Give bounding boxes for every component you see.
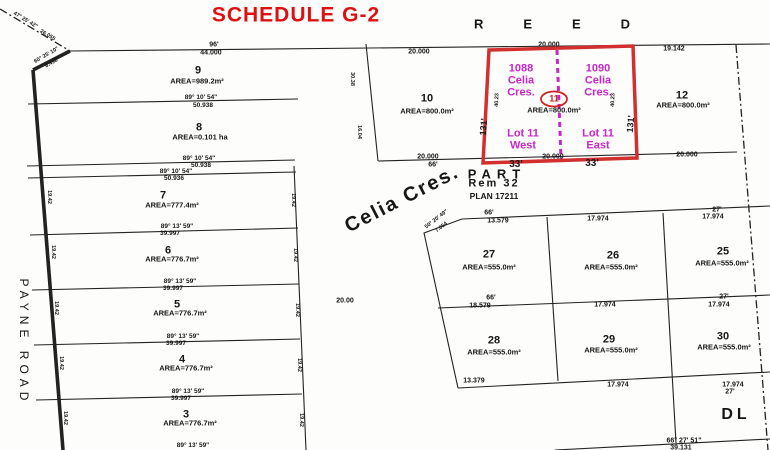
depth-3-left: 19.42 [61, 411, 67, 425]
dim-17974-30bottom: 17.974 [722, 382, 743, 389]
dist-5: 39.997 [163, 286, 183, 293]
dl-line [555, 439, 770, 450]
lot-11-west-line2: West [510, 141, 536, 152]
lot-25-area: AREA=555.0m² [695, 259, 749, 267]
dim-27ft-30bottom: 27' [725, 389, 734, 396]
dist-7: 39.997 [171, 396, 191, 403]
dim-33ft-west: 33' [509, 160, 523, 170]
dim-66ft-27bottom: 66' [486, 295, 495, 302]
dim-44000: 44.000 [200, 50, 221, 57]
dim-17974-mid2: 17.974 [708, 302, 729, 309]
dim-2000-road: 20.00 [336, 298, 354, 305]
dim-19142: 19.142 [663, 46, 684, 53]
lot-11-number: 11 [549, 95, 559, 104]
depth-6-right: 19.42 [291, 248, 297, 262]
road-edges [0, 9, 768, 450]
dim-131ft-left: 131' [479, 118, 489, 136]
dim-27ft-25top: 27' [712, 207, 721, 214]
dist-4: 39.997 [160, 231, 180, 238]
depth-4-right: 19.42 [295, 358, 301, 372]
survey-linework [0, 0, 770, 450]
dim-13579-top: 13.579 [487, 218, 508, 225]
rem-32-label: Rem 32 [468, 179, 519, 190]
depth-6-left: 19.42 [49, 245, 55, 259]
lot-30-number: 30 [717, 332, 729, 343]
addr-1090-line1: 1090 [586, 64, 610, 75]
lot4-lot3-line [36, 394, 302, 400]
dim-17974-26top: 17.974 [587, 216, 608, 223]
dim-66ft-lot10: 66' [428, 162, 437, 169]
dim-4023-left: 40.23 [495, 93, 501, 107]
depth-5-left: 19.42 [52, 301, 58, 315]
lot-6-area: AREA=776.7m² [145, 255, 199, 263]
street-payne-road: PAYNE ROAD [18, 279, 30, 406]
lot-29-number: 29 [603, 335, 615, 346]
dim-20000-lot10: 20.000 [408, 49, 429, 56]
lot-26-area: AREA=555.0m² [584, 263, 638, 271]
dist-6: 39.997 [166, 341, 186, 348]
lot-11-east-line1: Lot 11 [582, 129, 614, 140]
lot-3-area: AREA=776.7m² [163, 419, 217, 427]
lot-11-west-line1: Lot 11 [507, 129, 539, 140]
lot8-bottom-line [27, 160, 295, 166]
depth-4-left: 19.42 [57, 356, 63, 370]
lot-27-number: 27 [483, 250, 495, 261]
lot-10-area: AREA=800.0m² [400, 107, 454, 115]
lot-4-area: AREA=776.7m² [159, 364, 213, 372]
plat-map: SCHEDULE G-2REEDPAYNE ROADCelia Cres.PAR… [0, 0, 770, 450]
east-boundary-dashline [736, 45, 768, 450]
dim-131ft-right: 131' [626, 115, 636, 133]
lot-28-number: 28 [488, 336, 500, 347]
dim-17974-25top: 17.974 [702, 214, 723, 221]
depth-5-right: 19.42 [293, 303, 299, 317]
lot26-lot25-line [663, 213, 676, 443]
depth-3-right: 19.42 [297, 413, 303, 427]
lot-11-area: AREA=800.0m² [527, 106, 581, 114]
lot-27-area: AREA=555.0m² [462, 263, 516, 271]
addr-1088-line2: Celia [508, 76, 534, 87]
dim-18579: 18.579 [469, 303, 490, 310]
addr-1088-line3: Cres. [507, 88, 535, 99]
street-reed: REED [474, 18, 670, 31]
dim-33ft-east: 33' [585, 159, 599, 169]
dist-dl: 39.131 [670, 445, 691, 450]
lot-26-number: 26 [607, 251, 619, 262]
edge-1604: 16.04 [355, 125, 361, 139]
lot-12-area: AREA=800.0m² [656, 101, 710, 109]
dist-1: 50.938 [193, 103, 213, 110]
lot-8-area: AREA=0.101 ha [172, 133, 227, 141]
dim-66ft-27top: 66' [484, 210, 493, 217]
dist-2: 50.938 [191, 163, 211, 170]
dim-20000-lot11-top: 20.000 [538, 42, 559, 49]
lot-9-area: AREA=989.2m² [170, 77, 224, 85]
lot-28-area: AREA=555.0m² [467, 348, 521, 356]
lot-9-number: 9 [195, 66, 201, 77]
dim-20000-lot11-bottom: 20.000 [542, 154, 563, 161]
lot-30-area: AREA=555.0m² [697, 343, 751, 351]
addr-1088-line1: 1088 [509, 64, 533, 75]
lot-29-area: AREA=555.0m² [584, 346, 638, 354]
dist-3: 50.936 [164, 176, 184, 183]
dim-27ft-mid: 27' [719, 294, 728, 301]
lot9-lot8-line [28, 99, 298, 104]
edge-3038: 30.38 [348, 72, 354, 86]
plan-17211-label: PLAN 17211 [470, 192, 519, 201]
dim-17974-mid: 17.974 [594, 302, 615, 309]
bearing-1: 89° 10' 54" [185, 95, 218, 102]
dim-4023-right: 40.23 [611, 93, 617, 107]
addr-1090-line2: Celia [585, 76, 611, 87]
dim-20000-lot10-bottom: 20.000 [417, 154, 438, 161]
lot-7-area: AREA=777.4m² [145, 201, 199, 209]
bearing-dl: 66° 27' 51" [666, 438, 701, 445]
lot9-lot10-line [366, 44, 378, 161]
bearing-8: 89° 13' 59" [177, 443, 210, 450]
map-title: SCHEDULE G-2 [212, 5, 380, 26]
depth-7-left: 19.42 [45, 190, 51, 204]
lot-11-east-line2: East [586, 141, 609, 152]
addr-1090-line3: Cres. [584, 88, 612, 99]
lot-10-number: 10 [421, 94, 433, 105]
lot-5-area: AREA=776.7m² [153, 309, 207, 317]
dl-label: DL [721, 407, 750, 423]
lot27-lot26-line [547, 217, 558, 381]
lot-25-number: 25 [717, 247, 729, 258]
depth-7-right: 19.42 [289, 193, 295, 207]
dim-96ft: 96' [209, 42, 218, 49]
dim-20000-lot12: 20.000 [676, 152, 697, 159]
dim-13379: 13.379 [463, 378, 484, 385]
dim-17974-29bottom: 17.974 [607, 382, 628, 389]
payne-road-line [33, 70, 63, 450]
